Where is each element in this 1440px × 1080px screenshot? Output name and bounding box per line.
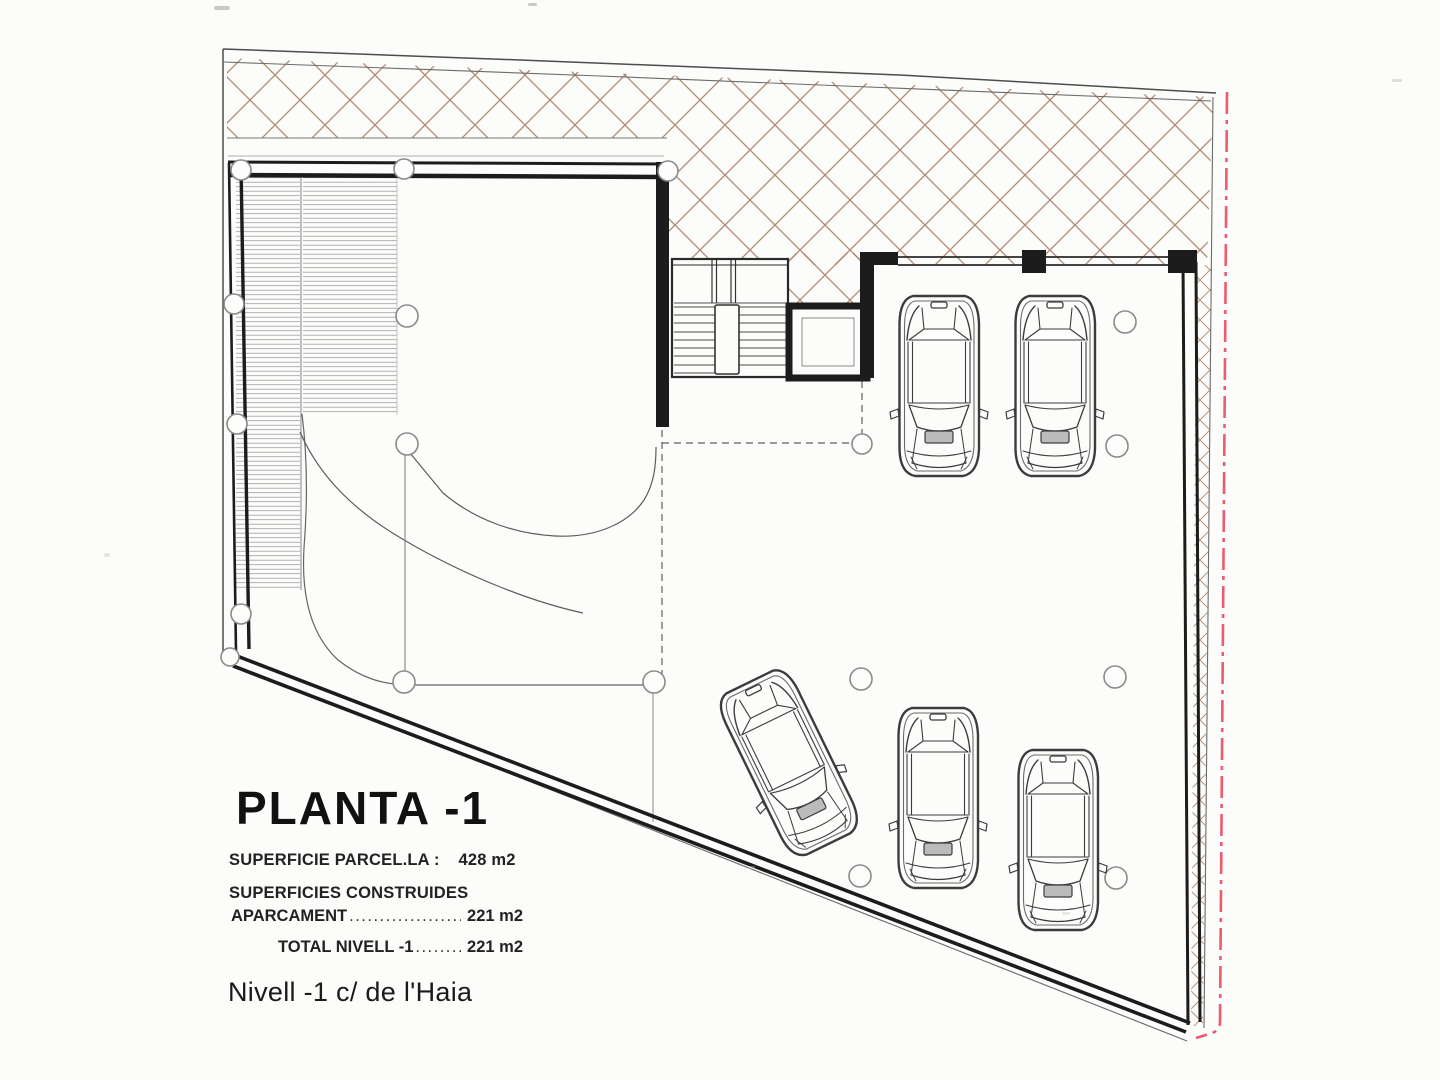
scan-artifact bbox=[1392, 79, 1402, 82]
car-2 bbox=[1006, 296, 1104, 476]
staircase bbox=[672, 259, 788, 377]
garage-walls bbox=[860, 250, 1200, 1025]
scan-artifact bbox=[528, 3, 537, 6]
elevator bbox=[789, 306, 867, 378]
leader-dots: ...................... bbox=[415, 938, 461, 957]
car-4 bbox=[889, 708, 987, 888]
site-area-value: 428 m2 bbox=[458, 851, 515, 869]
area-row-aparcament: APARCAMENT .............................… bbox=[231, 907, 523, 926]
floor-plan-drawing bbox=[0, 0, 1440, 1080]
area-row-total: TOTAL NIVELL -1 ...................... 2… bbox=[278, 938, 523, 957]
scan-artifact bbox=[1062, 912, 1070, 915]
built-areas-header: SUPERFICIES CONSTRUIDES bbox=[229, 884, 468, 903]
area-row-value: 221 m2 bbox=[467, 907, 523, 926]
area-row-label: APARCAMENT bbox=[231, 907, 347, 926]
level-caption: Nivell -1 c/ de l'Haia bbox=[228, 977, 472, 1008]
scan-artifact bbox=[214, 6, 230, 10]
scan-artifact bbox=[748, 866, 755, 869]
site-area-line: SUPERFICIE PARCEL.LA : 428 m2 bbox=[229, 851, 516, 870]
area-row-value: 221 m2 bbox=[467, 938, 523, 957]
plan-title: PLANTA -1 bbox=[236, 781, 489, 835]
car-1 bbox=[890, 296, 988, 476]
leader-dots: ........................................… bbox=[349, 907, 461, 926]
site-area-label: SUPERFICIE PARCEL.LA : bbox=[229, 851, 440, 869]
parked-cars bbox=[706, 296, 1107, 930]
area-row-label: TOTAL NIVELL -1 bbox=[278, 938, 413, 957]
scan-artifact bbox=[104, 553, 110, 557]
car-3-tilted bbox=[706, 661, 873, 866]
car-5 bbox=[1009, 750, 1107, 930]
perimeter-hatch-area bbox=[210, 20, 1232, 1026]
